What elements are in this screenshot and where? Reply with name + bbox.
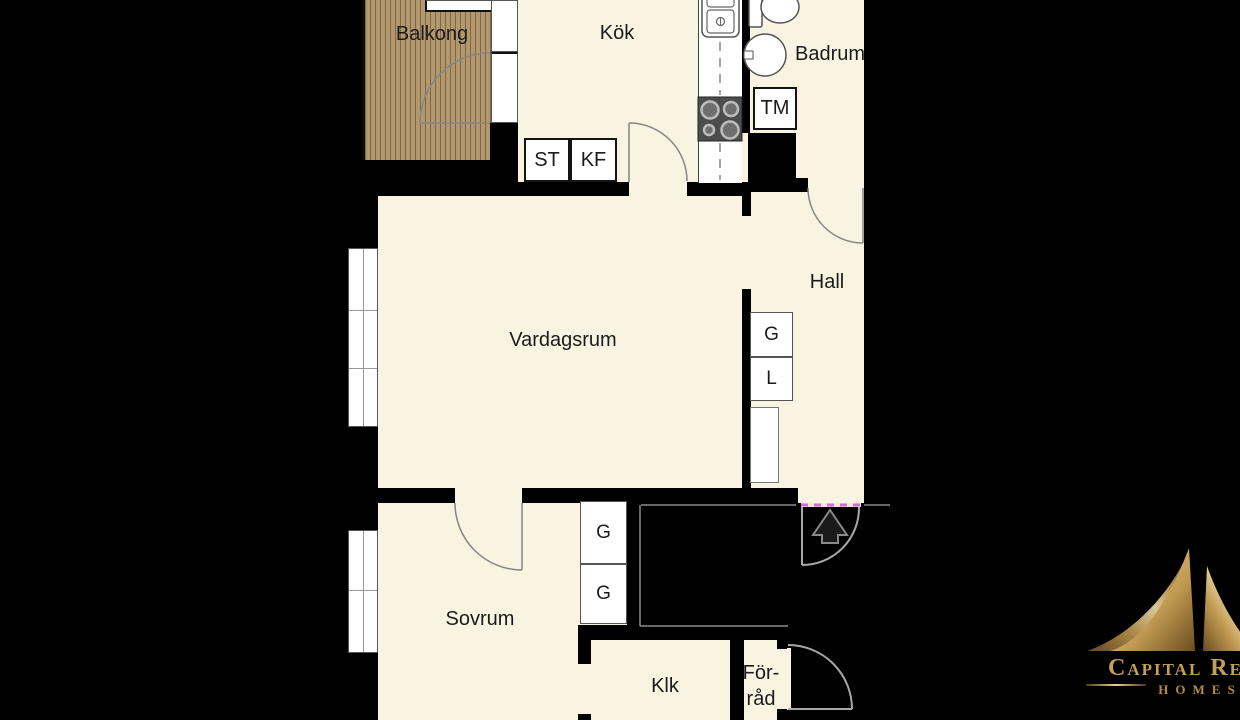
fixtures-overlay xyxy=(0,0,1240,720)
room-label-kok: Kök xyxy=(567,21,667,45)
room-label-hall: Hall xyxy=(777,270,877,294)
room-label-badrum: Badrum xyxy=(780,42,880,66)
sovrum-door-arc xyxy=(455,503,522,570)
forrad-line1: För- xyxy=(732,660,790,686)
balcony-door-arc xyxy=(420,53,490,123)
entrance-arrow-icon xyxy=(813,510,847,543)
kitchen-door-arc xyxy=(629,123,687,181)
badrum-door-arc xyxy=(808,188,863,243)
room-label-sovrum: Sovrum xyxy=(430,607,530,631)
building-outline xyxy=(640,505,890,626)
forrad-line2: råd xyxy=(732,686,790,712)
room-label-vardagsrum: Vardagsrum xyxy=(488,328,638,352)
logo-divider-left xyxy=(1086,684,1146,686)
stove-icon xyxy=(698,97,742,141)
toilet-icon xyxy=(749,0,799,27)
logo-tagline-text: Homes xyxy=(1150,682,1240,698)
double-basin-sink-icon xyxy=(702,0,739,37)
door-swings xyxy=(420,53,863,570)
room-label-balkong: Balkong xyxy=(377,22,487,46)
logo-mountain-icon xyxy=(1085,538,1240,658)
logo-brand-text: Capital Realty xyxy=(1108,655,1240,682)
floorplan-canvas: ST KF TM G L G G xyxy=(0,0,1240,720)
forrad-door-arc xyxy=(788,645,852,709)
room-label-klk: Klk xyxy=(625,674,705,698)
room-label-forrad: För- råd xyxy=(732,660,790,712)
